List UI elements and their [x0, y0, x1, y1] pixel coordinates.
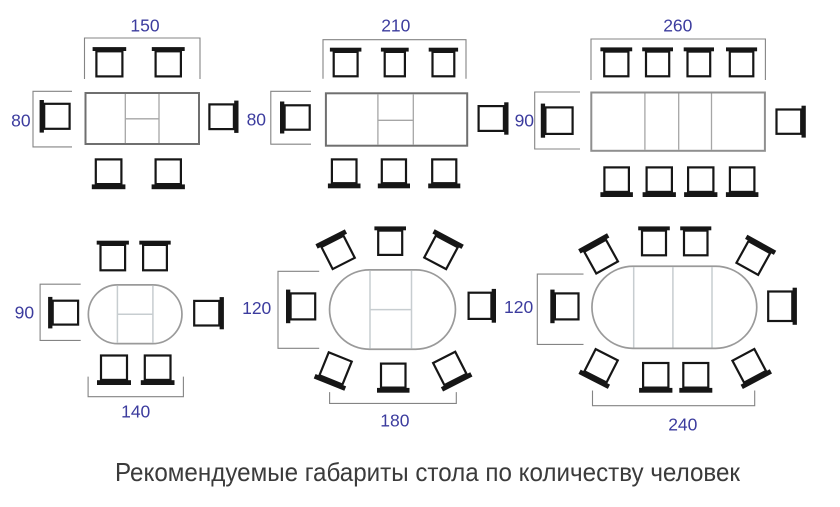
svg-text:90: 90 [515, 110, 535, 130]
svg-text:80: 80 [11, 110, 31, 130]
svg-text:140: 140 [121, 402, 150, 422]
svg-text:210: 210 [381, 16, 410, 36]
svg-text:240: 240 [668, 415, 697, 435]
svg-text:120: 120 [242, 298, 271, 318]
svg-text:80: 80 [247, 110, 267, 130]
svg-text:Рекомендуемые габариты стола п: Рекомендуемые габариты стола по количест… [115, 457, 741, 487]
svg-text:260: 260 [663, 15, 692, 35]
svg-text:180: 180 [380, 411, 409, 431]
svg-text:120: 120 [504, 297, 533, 317]
svg-text:150: 150 [130, 16, 159, 36]
svg-text:90: 90 [15, 302, 35, 322]
